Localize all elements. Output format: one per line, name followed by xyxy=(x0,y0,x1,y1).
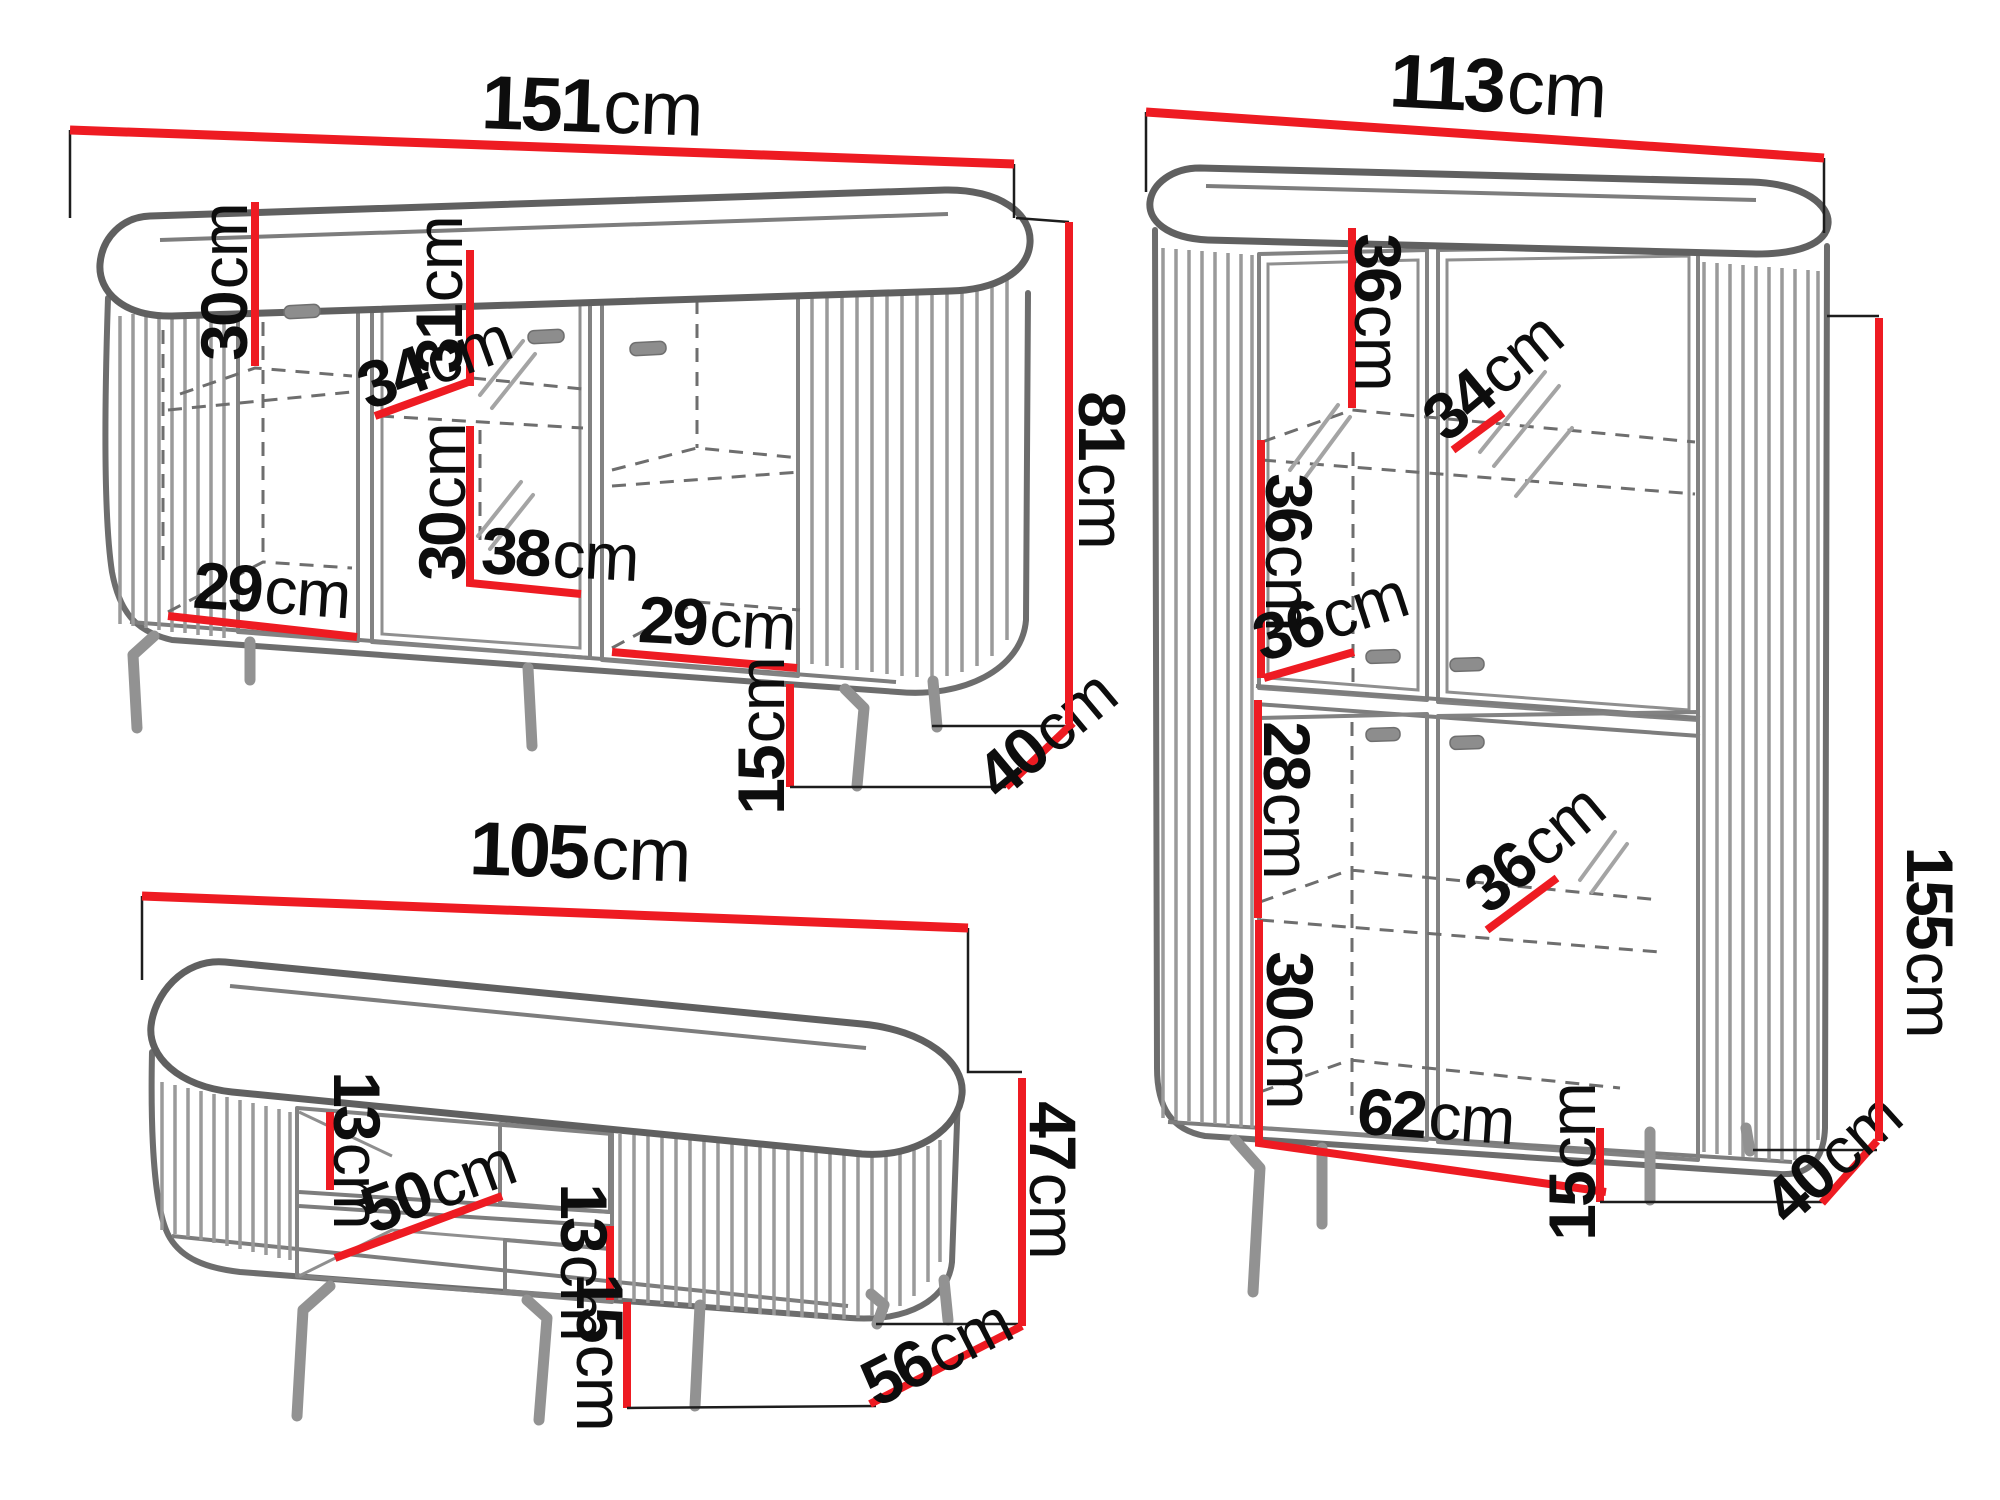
cabinet-fluting-right xyxy=(1704,262,1818,1161)
dim-sideboard-depth: 40cm xyxy=(932,655,1130,813)
dimension-label: 155cm xyxy=(1893,846,1967,1037)
dimension-label: 151cm xyxy=(480,60,704,153)
dimension-label: 15cm xyxy=(724,657,798,814)
dimension-label: 36cm xyxy=(1450,769,1618,927)
dimension-label: 81cm xyxy=(1065,391,1139,548)
dimension-label: 28cm xyxy=(1250,721,1324,878)
dimension-label: 62cm xyxy=(1355,1074,1517,1159)
dimension-line xyxy=(142,896,968,928)
dim-sideboard-right-interior-width: 29cm xyxy=(612,582,798,668)
dimension-label: 29cm xyxy=(191,548,353,633)
dim-cabinet-top-interior-height: 36cm xyxy=(1341,228,1415,408)
dimension-label: 113cm xyxy=(1387,38,1608,134)
cabinet-glass-door-right-frame xyxy=(1447,256,1689,710)
dimension-label: 15cm xyxy=(1535,1083,1609,1240)
cabinet-fluting-left xyxy=(1163,248,1252,1128)
dim-cabinet-lower-upper-interior-height: 28cm xyxy=(1250,700,1324,918)
door-handle xyxy=(1450,735,1484,749)
dim-sideboard-height: 81cm xyxy=(1016,218,1139,724)
door-handle xyxy=(1366,649,1400,663)
dim-cabinet-lower-shelf-depth: 36cm xyxy=(1450,769,1618,930)
door-handle xyxy=(284,304,321,319)
door-handle xyxy=(528,329,565,344)
dim-tv-stand-height: 47cm xyxy=(1016,1078,1090,1326)
dimension-label: 34cm xyxy=(1408,297,1576,455)
sideboard-drawing: 151cm 30cm 31cm 34cm 30cm 38cm xyxy=(70,60,1139,815)
dimension-label: 15cm xyxy=(563,1273,637,1430)
cabinet-top xyxy=(1150,168,1828,254)
dimension-label: 36cm xyxy=(1341,233,1415,390)
dim-sideboard-middle-interior-width: 38cm xyxy=(479,513,640,595)
dimension-label: 30cm xyxy=(187,203,261,360)
dimension-label: 38cm xyxy=(479,513,640,595)
furniture-dimensions-diagram: 151cm 30cm 31cm 34cm 30cm 38cm xyxy=(0,0,2000,1500)
sideboard-fluting-right xyxy=(812,273,1007,678)
tv-stand-fluting-left xyxy=(162,1082,290,1260)
door-handle xyxy=(1450,657,1484,671)
dimension-label: 105cm xyxy=(468,806,692,899)
dim-cabinet-height: 155cm xyxy=(1827,316,1967,1141)
dim-cabinet-depth: 40cm xyxy=(1749,1078,1915,1238)
cabinet-glass-door-right xyxy=(1438,246,1698,720)
dimension-label: 47cm xyxy=(1016,1101,1090,1258)
dim-sideboard-left-interior-height: 30cm xyxy=(187,202,261,366)
display-cabinet-drawing: 113cm 36cm 34cm 36cm 36cm 28cm xyxy=(1146,38,1967,1292)
door-handle xyxy=(630,341,667,356)
tv-stand-fluting-right xyxy=(620,1134,940,1319)
sideboard-legs xyxy=(133,636,937,786)
dimension-label: 29cm xyxy=(636,582,797,664)
extension-line xyxy=(627,1406,876,1408)
door-handle xyxy=(1366,727,1400,741)
tv-stand-drawing: 105cm 13cm 50cm 13cm 15cm 5 xyxy=(142,806,1090,1431)
dim-cabinet-top-shelf-depth: 34cm xyxy=(1408,297,1576,455)
dim-cabinet-interior-width: 62cm xyxy=(1355,1074,1517,1159)
dimension-label: 30cm xyxy=(405,423,479,580)
dimension-label: 40cm xyxy=(1749,1078,1915,1238)
dimension-label: 30cm xyxy=(1253,951,1327,1108)
